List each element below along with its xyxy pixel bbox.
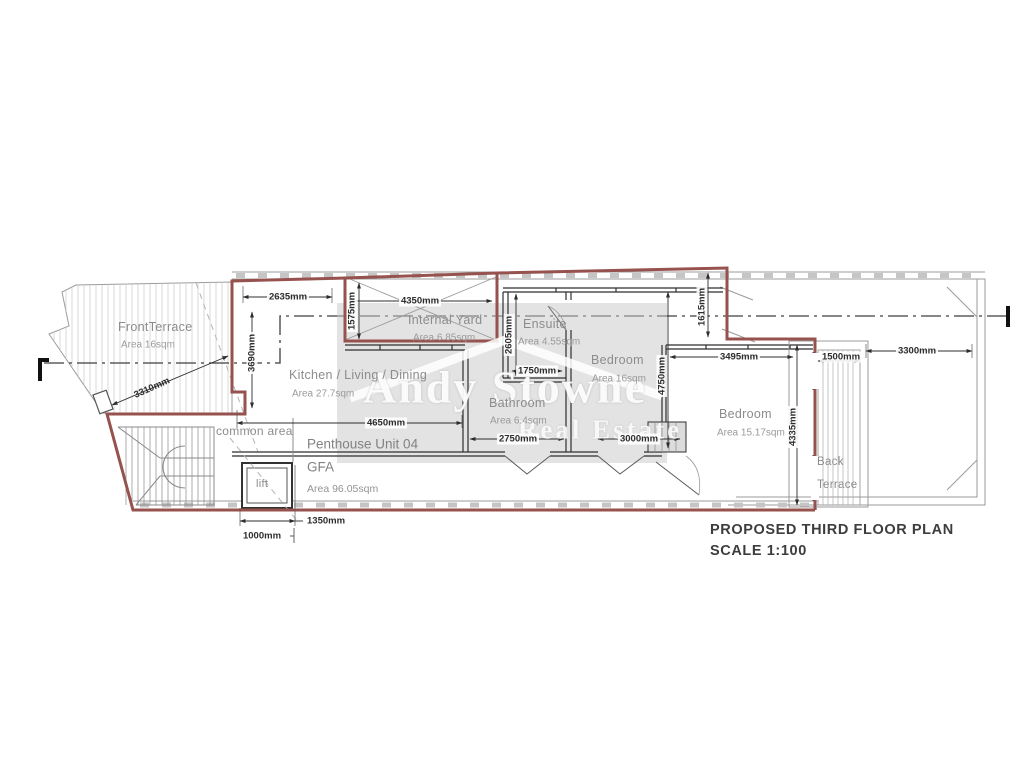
room-label-back-terrace: Back Terrace (817, 451, 871, 497)
room-label-bedroom-2: Bedroom (719, 407, 772, 421)
dim-lift-width: 1350mm (305, 516, 347, 527)
room-area-bathroom: Area 6.4sqm (490, 416, 547, 427)
room-area-bedroom-2: Area 15.17sqm (717, 428, 785, 439)
dim-kitchen-left: 3690mm (247, 332, 258, 374)
drawing-title: PROPOSED THIRD FLOOR PLAN (710, 522, 954, 538)
dim-bedroom1-right: 1615mm (697, 286, 708, 328)
stairs (118, 427, 214, 505)
centerline-start-marker (38, 358, 49, 381)
dim-bathroom-width: 2750mm (497, 434, 539, 445)
room-label-common-area: common area (216, 424, 293, 438)
drawing-scale: SCALE 1:100 (710, 543, 807, 559)
centerline-end-marker (1006, 306, 1010, 327)
room-area-front-terrace: Area 16sqm (121, 340, 175, 351)
dim-bedroom1-height: 4750mm (657, 355, 668, 397)
dim-ensuite-width: 1750mm (516, 366, 558, 377)
room-area-bedroom-1: Area 16sqm (592, 374, 646, 385)
room-label-lift: lift (256, 478, 268, 490)
dim-right-roof-width: 3300mm (896, 346, 938, 357)
dim-ensuite-height: 2605mm (504, 314, 515, 356)
floor-plan-page: Andy Stowne Real Estate FrontTerrace Are… (0, 0, 1024, 768)
room-label-kitchen: Kitchen / Living / Dining (289, 368, 427, 382)
unit-gfa-label: GFA (307, 460, 334, 475)
dim-bedroom2-width: 3495mm (718, 352, 760, 363)
dim-lift-inner: 1000mm (241, 531, 283, 542)
dim-back-terrace-width: 1500mm (820, 352, 862, 363)
room-label-internal-yard: Internal Yard (408, 313, 482, 327)
dim-kitchen-width: 4650mm (365, 418, 407, 429)
dim-yard-width: 4350mm (399, 296, 441, 307)
dim-yard-left: 1575mm (347, 290, 358, 332)
unit-title: Penthouse Unit 04 (307, 437, 418, 452)
dim-bedroom2-height: 4335mm (788, 406, 799, 448)
room-label-ensuite: Ensuite (523, 317, 567, 331)
dim-bedroom1-width: 3000mm (618, 434, 660, 445)
room-label-front-terrace: FrontTerrace (118, 320, 192, 334)
room-area-internal-yard: Area 6.85sqm (413, 333, 475, 344)
room-label-bedroom-1: Bedroom (591, 353, 644, 367)
room-label-bathroom: Bathroom (489, 396, 546, 410)
room-area-ensuite: Area 4.55sqm (518, 337, 580, 348)
room-area-kitchen: Area 27.7sqm (292, 389, 354, 400)
unit-gfa-area: Area 96.05sqm (307, 483, 378, 495)
dim-kitchen-top: 2635mm (267, 292, 309, 303)
